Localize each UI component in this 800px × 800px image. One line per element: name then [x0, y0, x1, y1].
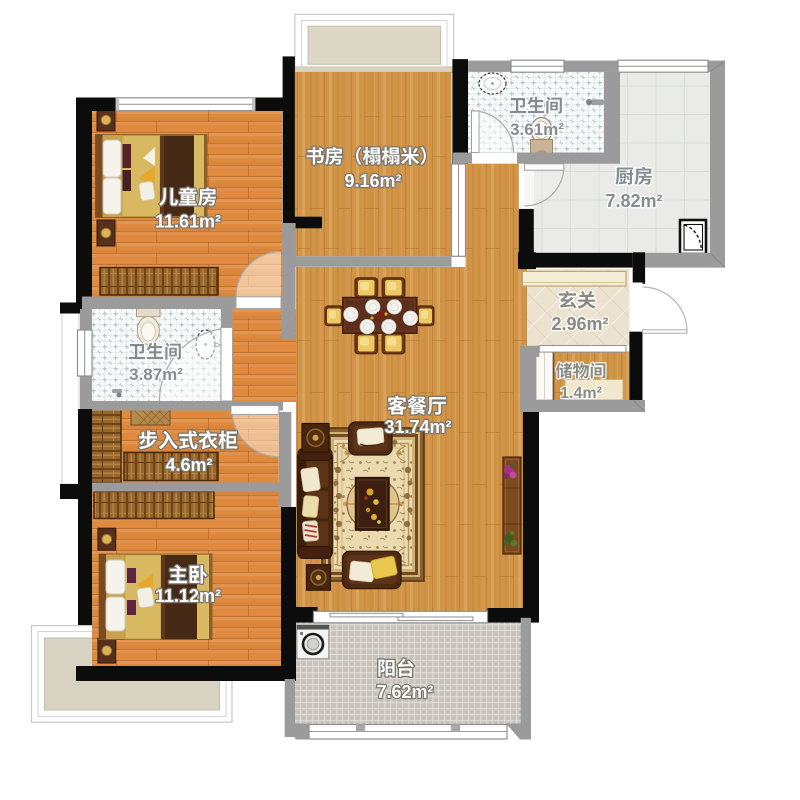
svg-text:11.12m²: 11.12m² — [155, 586, 221, 606]
svg-text:31.74m²: 31.74m² — [384, 417, 451, 437]
svg-text:4.6m²: 4.6m² — [165, 455, 212, 475]
svg-text:3.61m²: 3.61m² — [510, 120, 564, 139]
svg-text:1.4m²: 1.4m² — [560, 385, 602, 402]
svg-text:9.16m²: 9.16m² — [344, 171, 401, 191]
svg-text:7.62m²: 7.62m² — [376, 682, 433, 702]
svg-text:11.61m²: 11.61m² — [155, 212, 221, 232]
svg-text:7.82m²: 7.82m² — [605, 191, 662, 211]
svg-text:3.87m²: 3.87m² — [129, 365, 183, 384]
svg-text:2.96m²: 2.96m² — [551, 314, 608, 334]
